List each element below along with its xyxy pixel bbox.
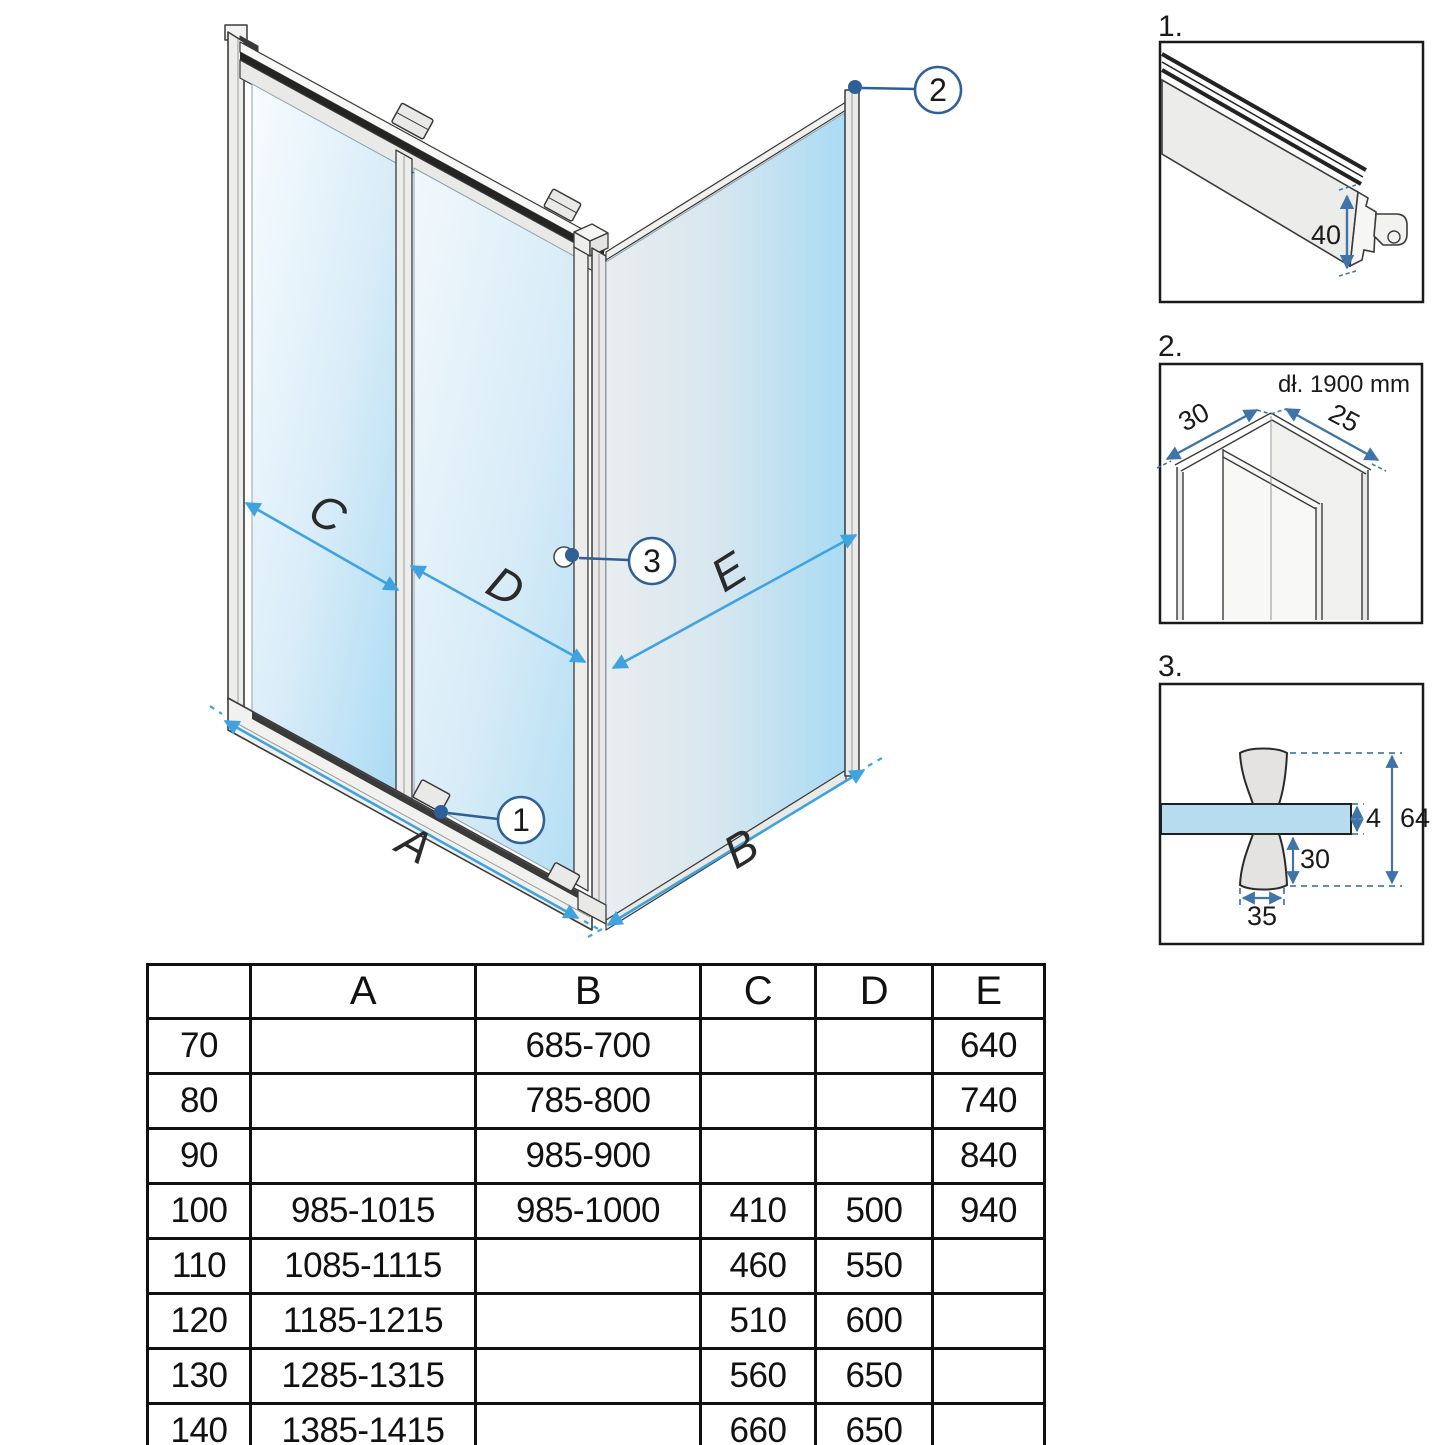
table-row: 100985-1015985-1000410500940: [148, 1184, 1045, 1239]
door-left-stile: [396, 150, 412, 800]
detail-2-label: 2.: [1158, 330, 1183, 363]
table-row: 80785-800740: [148, 1074, 1045, 1129]
header-c: C: [701, 965, 816, 1019]
detail-1-top-rail: 1. 40: [1158, 10, 1423, 302]
glass-section-bar: [1161, 804, 1351, 834]
detail-1-label: 1.: [1158, 10, 1183, 43]
door-right-stile: [574, 246, 588, 891]
detail-2-corner-profile: 2. dł. 1900 mm: [1157, 330, 1422, 623]
main-enclosure-drawing: C D E A B 1 2 3: [210, 25, 961, 937]
svg-text:2: 2: [929, 72, 947, 108]
header-e: E: [933, 965, 1045, 1019]
svg-text:3: 3: [643, 543, 661, 579]
size-table: A B C D E 70685-700640 80785-800740 9098…: [146, 963, 1046, 1445]
detail-3-knob-height: 30: [1300, 844, 1330, 874]
detail-3-knob-width: 35: [1247, 901, 1277, 931]
detail-3-glass-thickness: 4: [1366, 803, 1381, 833]
detail-3-label: 3.: [1158, 650, 1183, 683]
detail-3-total-height: 64: [1400, 803, 1430, 833]
detail-3-knob-section: 3. 4 64 30 35: [1158, 650, 1430, 944]
detail-2-length-note: dł. 1900 mm: [1278, 371, 1410, 398]
table-row: 1301285-1315560650: [148, 1349, 1045, 1404]
svg-text:1: 1: [512, 802, 530, 838]
side-panel: [606, 90, 859, 930]
table-row: 1401385-1415660650: [148, 1404, 1045, 1445]
table-row: 1201185-1215510600: [148, 1294, 1045, 1349]
table-row: 70685-700640: [148, 1019, 1045, 1074]
sliding-door-glass: [414, 168, 574, 884]
header-b: B: [476, 965, 701, 1019]
table-row: 90985-900840: [148, 1129, 1045, 1184]
header-d: D: [816, 965, 933, 1019]
fixed-glass-panel: [252, 84, 396, 791]
header-a: A: [251, 965, 476, 1019]
table-row: 1101085-1115460550: [148, 1239, 1045, 1294]
detail-1-dim-value: 40: [1311, 220, 1341, 250]
header-blank: [148, 965, 251, 1019]
shower-enclosure-spec-sheet: C D E A B 1 2 3 1.: [0, 0, 1445, 1445]
callout-2: 2: [848, 67, 961, 113]
size-table-header-row: A B C D E: [148, 965, 1045, 1019]
